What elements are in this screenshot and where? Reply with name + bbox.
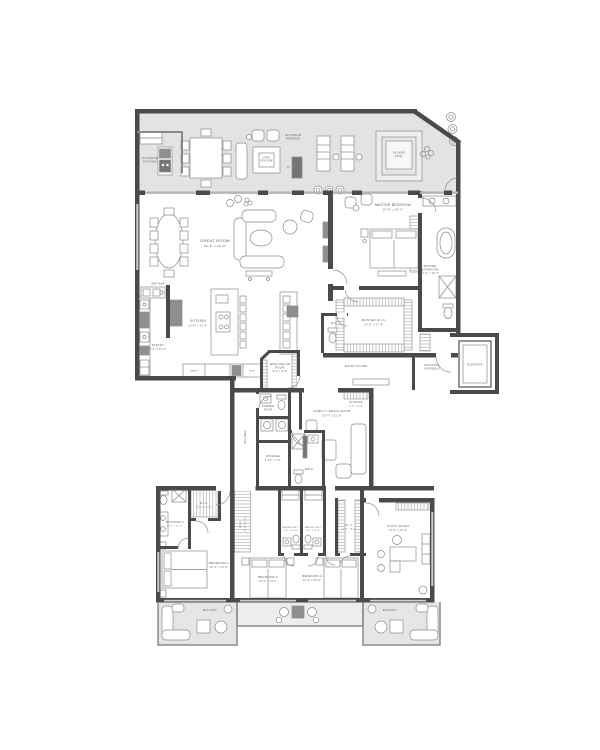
outdoor-tv-icon bbox=[292, 157, 302, 178]
label-ref: REF bbox=[249, 371, 255, 373]
label-master-wic-dims: 10'-6" x 17'-8" bbox=[364, 323, 383, 326]
label-master-bathroom-2: BATHROOM bbox=[421, 268, 439, 272]
bed2-icon bbox=[316, 558, 358, 598]
label-family-media-dims: 13'-6" x 21'-8" bbox=[322, 413, 342, 417]
label-wine-cellar-dims: 8'-0" x 9'-6" bbox=[273, 371, 288, 373]
label-master-bathroom-dims: 10'-0" x 18'-4" bbox=[421, 273, 439, 275]
sectional-sofa-icon bbox=[227, 196, 315, 281]
bathroom4-fixtures-icon bbox=[158, 489, 186, 536]
label-master-bathroom-1: MASTER bbox=[424, 264, 437, 268]
label-powder-2: ROOM bbox=[264, 408, 272, 411]
label-wic2: W.I.C. bbox=[345, 524, 353, 527]
label-bedroom3: BEDROOM 3 bbox=[258, 575, 278, 579]
label-wash: WASH bbox=[190, 370, 198, 373]
label-kitchen: KITCHEN bbox=[190, 319, 206, 323]
label-elevator-vestibule-2: VESTIBULE bbox=[424, 367, 440, 370]
label-master-bedroom: MASTER BEDROOM bbox=[375, 203, 411, 207]
label-entry-foyer: ENTRY FOYER bbox=[345, 364, 368, 368]
label-bathroom4: BATHROOM 4 bbox=[166, 521, 185, 524]
washer-dryer-icon bbox=[261, 419, 288, 431]
label-balcony-right: BALCONY bbox=[383, 608, 397, 612]
label-study: STUDY ROOM bbox=[387, 524, 409, 528]
label-family-media: FAMILY / MEDIA ROOM bbox=[313, 409, 350, 413]
wet-bar-icon bbox=[141, 287, 165, 298]
label-bedroom2: BEDROOM 2 bbox=[302, 574, 322, 578]
label-pantry-dims: 5'-4" x 13'-6" bbox=[150, 348, 167, 351]
label-fire-feature-1: FIRE bbox=[263, 158, 269, 160]
pantry-counter-icon bbox=[139, 296, 150, 376]
label-storage-hall-dims: 6'-10" x 7'-8" bbox=[265, 460, 281, 462]
master-bath-fixtures-icon bbox=[423, 196, 456, 319]
bathroom2-fixtures-icon bbox=[304, 490, 322, 549]
foyer-console-icon bbox=[353, 379, 389, 385]
wc-toilet-icon bbox=[328, 328, 337, 343]
label-outdoor-terrace-2: TERRACE bbox=[285, 137, 300, 141]
label-bedroom2-dims: 12'-4" x 13'-0" bbox=[303, 579, 321, 582]
label-wic3-dims: 5'-0" x 9'-8" bbox=[245, 517, 247, 531]
label-bedroom4-dims: 12'-2" x 13'-8" bbox=[210, 566, 228, 569]
kitchen-column bbox=[170, 300, 182, 326]
media-console-icon bbox=[323, 222, 328, 262]
label-study-dims: 13'-0" x 13'-4" bbox=[389, 529, 407, 532]
label-elevator: ELEVATOR bbox=[467, 363, 482, 367]
label-great-room-dims: 30'-4" x 24'-0" bbox=[204, 244, 226, 248]
bed4-icon bbox=[158, 542, 207, 597]
label-plunge-pool-1: PLUNGE bbox=[393, 150, 405, 154]
kitchen-counter-icon bbox=[280, 292, 298, 354]
label-bathroom4-dims: 6'-8" x 11'-0" bbox=[167, 525, 183, 527]
label-storage-hall: STORAGE bbox=[266, 454, 280, 458]
label-bedroom3-dims: 12'-4" x 13'-0" bbox=[259, 580, 277, 583]
label-bathroom2-dims: 5'-0" x 10'-8" bbox=[306, 530, 321, 532]
label-bathroom3-dims: 5'-0" x 10'-8" bbox=[283, 530, 298, 532]
label-wc: W.C. bbox=[331, 321, 338, 325]
study-desk-icon bbox=[378, 534, 431, 594]
label-kitchen-dims: 11'-8" x 21'-4" bbox=[188, 323, 208, 327]
label-bathroom2: BATHROOM 2 bbox=[305, 526, 322, 529]
floor-plan-canvas: { "document": { "type": "residential flo… bbox=[0, 0, 600, 750]
label-pantry: PANTRY bbox=[152, 343, 165, 347]
label-hallway: HALLWAY bbox=[243, 430, 247, 444]
label-fire-feature-2: FEATURE bbox=[260, 160, 273, 163]
label-bedroom4: BEDROOM 4 bbox=[209, 561, 229, 565]
floor-plan-svg: OUTDOOR KITCHEN OUTDOOR TERRACE FIRE FEA… bbox=[0, 0, 600, 750]
label-wic4-dims: 5'-4" x 6'-8" bbox=[197, 506, 211, 508]
label-wic4: W.I.C. bbox=[200, 502, 208, 505]
label-wine-cellar-2: ROOM bbox=[275, 365, 284, 369]
dining-table-icon bbox=[150, 208, 188, 277]
label-outdoor-kitchen-2: KITCHEN bbox=[143, 160, 157, 164]
label-master-wic: MASTER W.I.C. bbox=[362, 318, 387, 322]
label-wic2-dims: 6'-8" x 8'-2" bbox=[343, 528, 357, 530]
label-great-room: GREAT ROOM bbox=[200, 238, 229, 243]
label-plunge-pool-2: POOL bbox=[395, 154, 404, 158]
label-storage-foyer: STORAGE bbox=[349, 401, 363, 404]
label-master-bedroom-dims: 16'-8" x 20'-4" bbox=[383, 207, 404, 211]
bathroom3-fixtures-icon bbox=[282, 490, 300, 549]
label-wine-cellar-1: WINE CELLAR bbox=[270, 362, 290, 366]
label-storage-foyer-dims: 4'-0" x 8'-2" bbox=[349, 405, 363, 407]
kitchen-island-icon bbox=[211, 289, 246, 355]
label-bathroom3: BATHROOM 3 bbox=[282, 526, 299, 529]
label-outdoor-tv: TV bbox=[286, 166, 290, 169]
label-wic3: W.I.C. bbox=[239, 520, 242, 528]
label-bath: BATH bbox=[305, 467, 313, 471]
label-balcony-left: BALCONY bbox=[203, 608, 217, 612]
label-wet-bar: WET BAR bbox=[151, 281, 165, 285]
